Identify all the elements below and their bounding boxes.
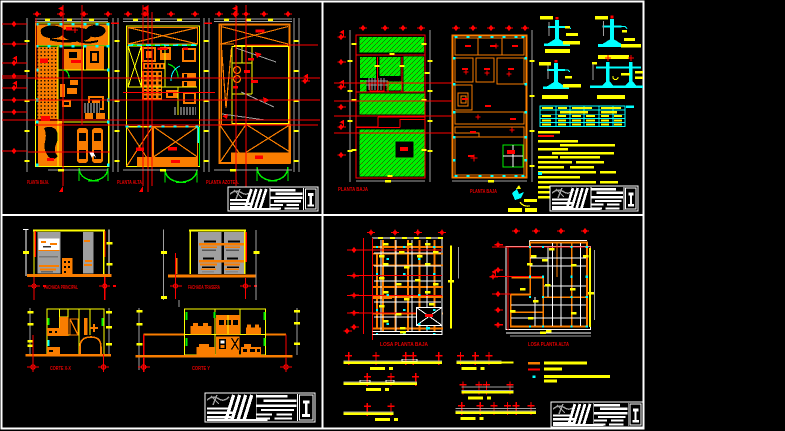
svg-text:LOSA PLANTA ALTA: LOSA PLANTA ALTA xyxy=(528,342,569,348)
svg-text:PLANTA AZOTEA.: PLANTA AZOTEA. xyxy=(206,180,239,186)
svg-text:PLANTA BAJA: PLANTA BAJA xyxy=(338,187,368,193)
svg-text:PLANTA BAJA: PLANTA BAJA xyxy=(470,189,497,195)
svg-text:FACHADA PRINCIPAL: FACHADA PRINCIPAL xyxy=(44,285,78,291)
svg-text:PLANTA ALTA.: PLANTA ALTA. xyxy=(117,180,143,186)
svg-text:CORTE Y: CORTE Y xyxy=(192,366,211,372)
svg-text:FACHADA TRASERA: FACHADA TRASERA xyxy=(188,285,220,291)
svg-text:LOSA PLANTA BAJA: LOSA PLANTA BAJA xyxy=(380,342,428,348)
svg-text:PLANTA BAJA.: PLANTA BAJA. xyxy=(27,180,49,186)
svg-text:CORTE X-X: CORTE X-X xyxy=(50,366,72,372)
